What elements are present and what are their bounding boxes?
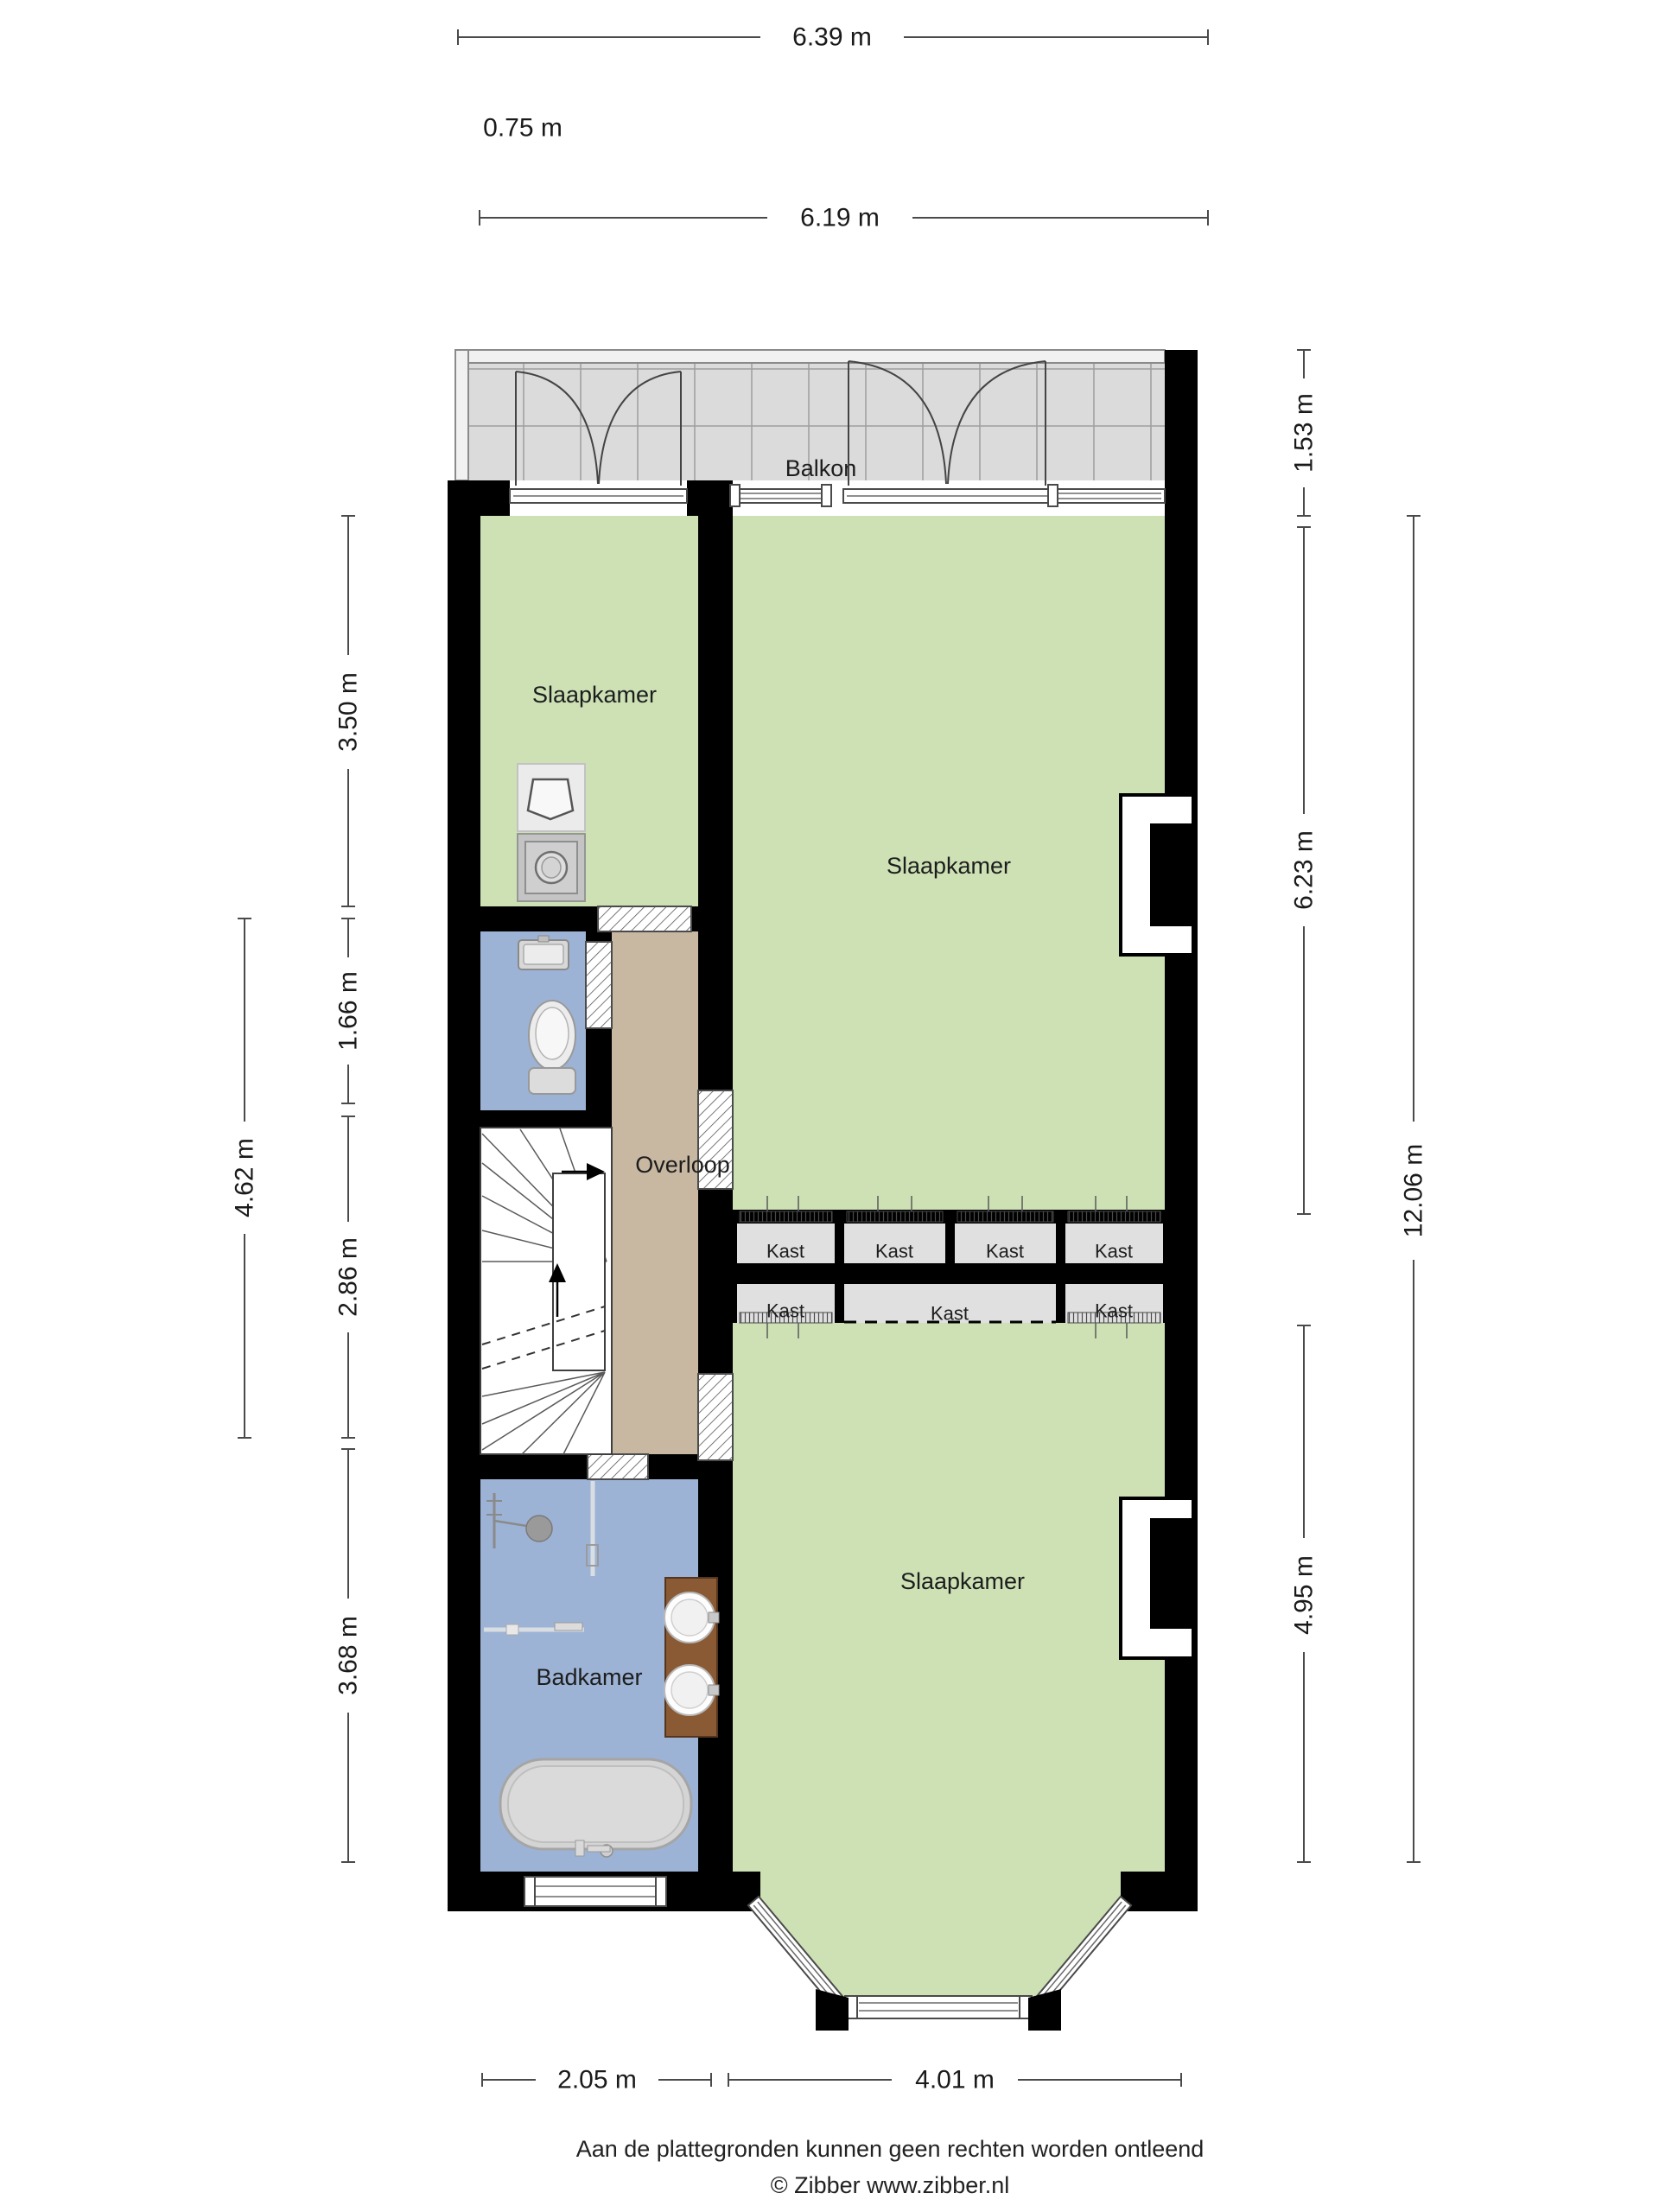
label-slaapkamer-right: Slaapkamer bbox=[887, 853, 1011, 879]
dimension-label: 12.06 m bbox=[1400, 1144, 1428, 1237]
closet-label: Kast bbox=[1095, 1241, 1133, 1262]
closet-label: Kast bbox=[986, 1241, 1024, 1262]
footer: Aan de plattegronden kunnen geen rechten… bbox=[576, 2136, 1205, 2198]
toilet-icon bbox=[529, 1001, 575, 1094]
closet-label: Kast bbox=[875, 1241, 913, 1262]
dimension-left-166: 1.66 m bbox=[334, 918, 363, 1103]
floor-plan-canvas: Balkon bbox=[0, 0, 1659, 2212]
wall-slaapkamer-left-bottom bbox=[480, 906, 598, 931]
dimension-label: 6.19 m bbox=[800, 204, 880, 232]
footer-disclaimer: Aan de plattegronden kunnen geen rechten… bbox=[576, 2136, 1205, 2162]
staircase bbox=[480, 1128, 612, 1454]
dimension-right-495: 4.95 m bbox=[1290, 1325, 1319, 1862]
dimension-bottom-401: 4.01 m bbox=[728, 2066, 1181, 2094]
dimension-label: 3.68 m bbox=[334, 1616, 363, 1695]
balcony-label: Balkon bbox=[785, 455, 857, 481]
dimension-label: 2.86 m bbox=[334, 1237, 363, 1317]
wall-slaapkamer-left-bottom-end bbox=[691, 906, 698, 931]
door-slaapkamer-left bbox=[598, 906, 691, 931]
room-slaapkamer-left bbox=[480, 516, 698, 906]
vanity bbox=[664, 1578, 719, 1737]
closet-label: Kast bbox=[766, 1300, 804, 1322]
dimension-label: 1.66 m bbox=[334, 971, 363, 1051]
wall-centre-middle bbox=[698, 1189, 733, 1374]
dimension-right-623: 6.23 m bbox=[1290, 527, 1319, 1214]
window-badkamer bbox=[524, 1877, 666, 1906]
wall-toilet-bottom bbox=[480, 1110, 612, 1128]
wall-right bbox=[1165, 350, 1198, 1911]
door-toilet bbox=[586, 942, 612, 1028]
wall-badkamer-top-left bbox=[480, 1454, 588, 1479]
wall-pier-top-middle bbox=[687, 480, 733, 516]
dimension-label: 0.75 m bbox=[483, 114, 563, 143]
closet-label: Kast bbox=[931, 1303, 969, 1325]
closet-label: Kast bbox=[1095, 1300, 1133, 1322]
dimension-right-1206: 12.06 m bbox=[1400, 516, 1428, 1862]
dimension-top-075: 0.75 m bbox=[483, 114, 563, 143]
label-slaapkamer-bottom: Slaapkamer bbox=[900, 1568, 1025, 1594]
label-overloop: Overloop bbox=[635, 1152, 730, 1178]
dimension-left-368: 3.68 m bbox=[334, 1449, 363, 1862]
door-slaapkamer-bottom bbox=[698, 1374, 733, 1460]
dimension-label: 4.01 m bbox=[915, 2066, 995, 2094]
room-slaapkamer-bottom bbox=[733, 1323, 1165, 1872]
chimney-niche-upper bbox=[1121, 795, 1198, 955]
dimension-label: 6.39 m bbox=[792, 23, 872, 52]
door-badkamer bbox=[588, 1454, 648, 1479]
sink-icon bbox=[518, 936, 569, 969]
balcony-railing-top bbox=[455, 350, 1165, 363]
chimney-niche-lower bbox=[1121, 1498, 1198, 1658]
footer-copyright: © Zibber www.zibber.nl bbox=[771, 2172, 1010, 2198]
dryer-icon bbox=[518, 764, 585, 831]
label-slaapkamer-left: Slaapkamer bbox=[532, 682, 657, 708]
closet-label: Kast bbox=[766, 1241, 804, 1262]
bay-window-front bbox=[845, 1996, 1032, 2018]
dimension-top-619: 6.19 m bbox=[480, 204, 1208, 232]
dimension-label: 3.50 m bbox=[334, 672, 363, 752]
window-balcony-1 bbox=[730, 485, 831, 506]
dimension-left-350: 3.50 m bbox=[334, 516, 363, 906]
dimension-right-153: 1.53 m bbox=[1290, 350, 1319, 516]
dimension-label: 4.95 m bbox=[1290, 1555, 1319, 1635]
dimension-label: 1.53 m bbox=[1290, 393, 1319, 473]
washer-icon bbox=[518, 834, 585, 901]
dimension-label: 6.23 m bbox=[1290, 830, 1319, 910]
dimension-left-462: 4.62 m bbox=[231, 918, 259, 1438]
dimension-top-639: 6.39 m bbox=[458, 23, 1208, 52]
bathtub-icon bbox=[500, 1759, 691, 1857]
dimension-left-286: 2.86 m bbox=[334, 1116, 363, 1438]
dimension-bottom-205: 2.05 m bbox=[482, 2066, 711, 2094]
room-bay-window-floor bbox=[753, 1872, 1125, 2006]
dimension-label: 2.05 m bbox=[557, 2066, 637, 2094]
wall-centre-upper bbox=[698, 516, 733, 1090]
window-balcony-2 bbox=[1048, 485, 1165, 506]
label-badkamer: Badkamer bbox=[536, 1664, 642, 1690]
wall-left bbox=[448, 480, 480, 1911]
balcony: Balkon bbox=[455, 350, 1165, 481]
dimension-label: 4.62 m bbox=[231, 1138, 259, 1217]
balcony-railing-left bbox=[455, 350, 468, 480]
wall-pier-top-left bbox=[448, 480, 510, 516]
